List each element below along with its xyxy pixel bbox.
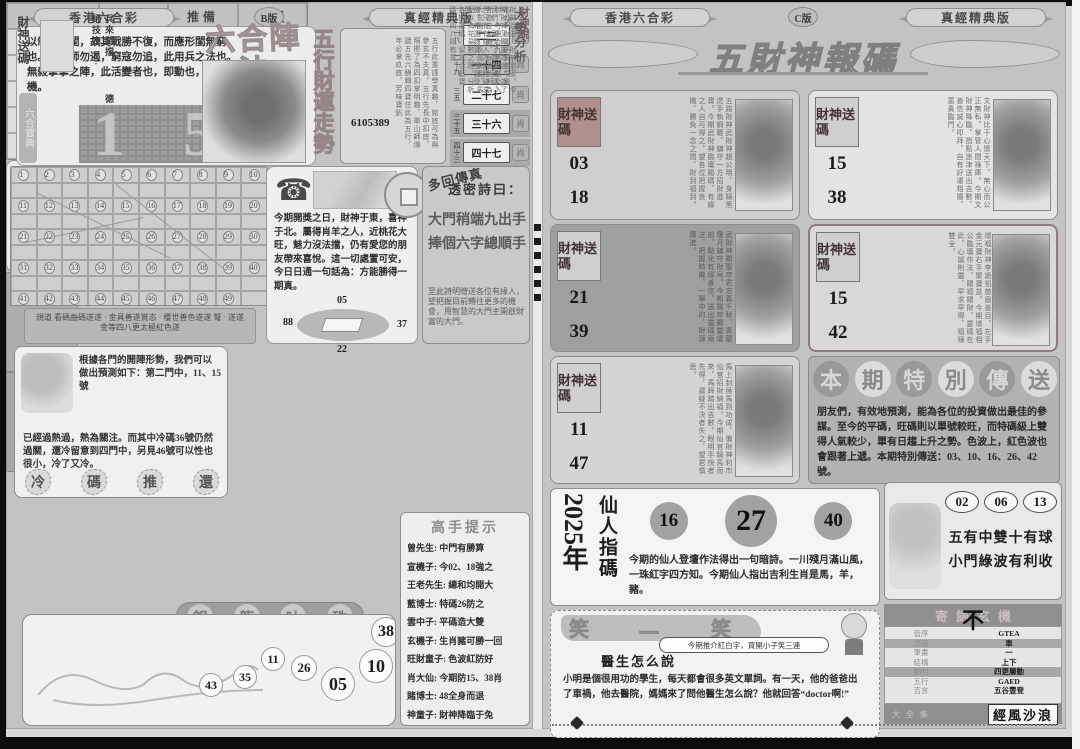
trend-analysis-text: 本公司財運研究各項資料，考慮合九宮神數及入會遊位玄機，直通世術為人玄機子，長遠來… <box>448 6 511 98</box>
hotline-number: 6105389 <box>351 117 390 129</box>
grid-number: 45 <box>121 293 132 305</box>
special-delivery-title: 本期特別傳送 <box>813 361 1057 397</box>
grid-cell <box>88 183 114 199</box>
tip-line: 賭博士: 48全身而退 <box>407 687 523 706</box>
grid-cell <box>11 245 37 261</box>
grid-cell <box>241 291 267 306</box>
palette-number-left: 88 <box>283 317 293 328</box>
caishen-card-2: 財神送碼 15 38 文財神比干心懷天下，無心而公正無私，掌管人間祿庫。今期文財… <box>808 90 1058 220</box>
riddle-footer: 大全集 經風沙浪 <box>884 704 1062 724</box>
grid-cell: 8 <box>190 167 216 183</box>
grid-empty-row <box>11 183 267 199</box>
dragon-number: 38 <box>371 617 396 647</box>
riddle-label: 音序 <box>885 629 957 639</box>
big-digit: 1 <box>93 105 125 163</box>
grid-cell: 31 <box>11 260 37 276</box>
card-label: 財神送碼 <box>816 232 860 282</box>
joke-banner-char: 笑 <box>569 613 589 642</box>
grid-cell: 44 <box>88 291 114 306</box>
grid-number: 47 <box>172 293 183 305</box>
baby-illustration <box>21 353 73 413</box>
grid-number: 43 <box>69 293 80 305</box>
special-title-char: 本 <box>813 361 849 397</box>
grid-number: 18 <box>197 200 208 212</box>
lion-statue-image <box>202 60 306 163</box>
registration-mark <box>534 294 541 301</box>
grid-number: 3 <box>69 169 80 181</box>
grid-cell <box>11 214 37 230</box>
card-number: 03 <box>557 153 601 175</box>
grid-number: 14 <box>95 200 106 212</box>
year-label: 2025年 <box>555 493 592 603</box>
registration-mark <box>534 238 541 245</box>
grid-number: 37 <box>172 262 183 274</box>
grid-cell <box>190 214 216 230</box>
card-scripture-text: 馬上封侯馬到功成，偏財神利市仙官招財納福。今期仙官騎馬而來，馬蹄踏出吉數，眼明手… <box>609 363 733 479</box>
tip-line: 神童子: 財神降臨于兔 <box>407 706 523 725</box>
grid-cell: 36 <box>139 260 165 276</box>
lucky-number: 13 <box>1023 491 1057 513</box>
cold-code-words: 冷碼推還 <box>19 469 225 495</box>
riddle-row: 動向四更層動 <box>885 667 1061 677</box>
grid-cell: 24 <box>88 229 114 245</box>
brand-title: 香港六合彩 <box>570 8 710 27</box>
grid-number: 11 <box>18 200 29 212</box>
lucky-verse-box: 020613 五有中雙十有球 小門綠波有利收 <box>884 482 1062 600</box>
grid-cell: 42 <box>37 291 63 306</box>
card-number: 18 <box>557 187 601 209</box>
grid-number: 1 <box>18 169 29 181</box>
card-number: 39 <box>557 321 601 343</box>
palette-number-top: 05 <box>337 295 347 306</box>
card-scripture-text: 文財神比干心懷天下，無心而公正無私，掌管人間祿庫。今期文財神降臨，指點迷津送出吉… <box>867 97 991 213</box>
caishen-card-3: 財神送碼 21 39 武財神關聖帝君忠義千秋，青龍偃月鎮守財帛。今期關帝顯靈壇前… <box>550 224 800 352</box>
grid-cell: 37 <box>165 260 191 276</box>
grid-cell: 6 <box>139 167 165 183</box>
grid-number: 38 <box>197 262 208 274</box>
prediction-text-2: 已經過熱過，熱為關注。而其中冷碼36號仍然過關，還冷留意到四門中，另見46號可以… <box>23 433 221 472</box>
grid-cell: 40 <box>241 260 267 276</box>
riddle-label: 動向 <box>885 667 957 677</box>
page-right-c-edition: 香港六合彩 C版 真經精典版 五財神報碼 財神送碼 03 18 五路財神武財神趙… <box>542 2 1066 729</box>
dragon-number: 10 <box>359 649 393 683</box>
grid-number: 41 <box>18 293 29 305</box>
scanned-lottery-sheet: 香港六合彩 B版 真經精典版 以制勝之閨，故其戰勝不復，而應形閨無窮也。其歸師勿… <box>0 0 1080 749</box>
grid-empty-row <box>11 214 267 230</box>
pair-key: 四十三 <box>451 142 461 163</box>
dragon-number: 35 <box>233 665 257 689</box>
riddle-label: 結構 <box>885 658 957 668</box>
edition-badge: C版 <box>788 7 818 27</box>
caishen-card-5: 財神送碼 11 47 馬上封侯馬到功成，偏財神利市仙官招財納福。今期仙官騎馬而來… <box>550 356 800 484</box>
grid-cell: 21 <box>11 229 37 245</box>
dragon-panel: 43351126051038 <box>22 614 396 726</box>
grid-cell <box>88 245 114 261</box>
grid-number: 5 <box>121 169 132 181</box>
expert-tips-card: 高手提示 曾先生: 中門有勝算宣機子: 今02、18強之王老先生: 總和均開大藍… <box>400 512 530 726</box>
grid-number-row: 11121314151617181920 <box>11 198 267 214</box>
horse-statue-image <box>735 365 793 477</box>
daily-talk-text: 今期開獎之日，財神于東，喜神于北。屬得肖羊之人，近桃花大旺，魅力沒法擋，仍有愛您… <box>274 213 412 294</box>
joke-box: 笑一笑 醫生怎么說 今期推介紅白字，買開小子笑三連 小明是個很用功的學生，每天都… <box>550 610 880 738</box>
registration-mark <box>534 280 541 287</box>
grid-empty-row <box>11 245 267 261</box>
special-title-char: 特 <box>896 361 932 397</box>
riddle-value: 一 <box>957 648 1061 658</box>
grid-cell: 47 <box>165 291 191 306</box>
lucky-numbers: 020613 <box>945 491 1057 513</box>
grid-cell: 41 <box>11 291 37 306</box>
special-title-char: 別 <box>938 361 974 397</box>
grid-number: 29 <box>223 231 234 243</box>
grid-number: 49 <box>223 293 234 305</box>
riddle-label: 筆畫 <box>885 648 957 658</box>
lucky-number: 02 <box>945 491 979 513</box>
special-title-char: 期 <box>855 361 891 397</box>
special-title-char: 送 <box>1021 361 1057 397</box>
grid-cell <box>241 245 267 261</box>
immortal-number: 40 <box>814 502 852 540</box>
page-left-b-edition: 香港六合彩 B版 真經精典版 以制勝之閨，故其戰勝不復，而應形閨無窮也。其歸師勿… <box>6 2 533 729</box>
grid-number: 6 <box>146 169 157 181</box>
grid-cell: 28 <box>190 229 216 245</box>
grid-cell: 19 <box>216 198 242 214</box>
grid-cell <box>216 245 242 261</box>
tip-line: 雲中子: 平碼造大雙 <box>407 613 523 632</box>
cold-word: 推 <box>137 469 163 495</box>
grid-cell: 35 <box>113 260 139 276</box>
riddle-label: 吉言 <box>885 686 957 696</box>
special-delivery-text: 朋友們，有效地預測，能為各位的投資做出最佳的參謀。至今的平碼，旺碼則以單號較旺，… <box>817 405 1053 480</box>
expert-tips-title: 高手提示 <box>407 517 523 537</box>
grid-number: 9 <box>223 169 234 181</box>
riddle-row: 結構上下 <box>885 658 1061 668</box>
grid-cell: 10 <box>241 167 267 183</box>
riddle-row: 音序GTEA <box>885 629 1061 639</box>
riddle-value: GAED <box>957 677 1061 687</box>
grid-cell <box>37 214 63 230</box>
grid-cell: 4 <box>88 167 114 183</box>
grid-number-row: 414243444546474849 <box>11 291 267 306</box>
tip-line: 曾先生: 中門有勝算 <box>407 539 523 558</box>
grid-cell: 34 <box>88 260 114 276</box>
cold-word: 碼 <box>81 469 107 495</box>
grid-number: 32 <box>44 262 55 274</box>
grid-number: 44 <box>95 293 106 305</box>
card-label: 財神送碼 <box>557 97 601 147</box>
riddle-value: 五谷豐登 <box>957 686 1061 696</box>
prediction-text-1: 根據各門的開陣形勢，我們可以做出預測如下：第二門中，11、15號 <box>79 355 221 394</box>
grid-cell: 30 <box>241 229 267 245</box>
grid-number: 34 <box>95 262 106 274</box>
immortal-number: 16 <box>650 502 688 540</box>
grid-cell: 33 <box>62 260 88 276</box>
dragon-number: 05 <box>321 667 355 701</box>
grid-number: 36 <box>146 262 157 274</box>
riddle-rows: 音序GTEA部首車筆畫一結構上下動向四更層動五行GAED吉言五谷豐登 <box>885 629 1061 696</box>
caishen-card-1: 財神送碼 03 18 五路財神武財神趙公明，身騎黑虎手執鋼鞭，鎮守一方招財進寶。… <box>550 90 800 220</box>
grid-cell <box>37 276 63 292</box>
expert-tips-list: 曾先生: 中門有勝算宣機子: 今02、18強之王老先生: 總和均開大藍博士: 特… <box>407 539 523 724</box>
tip-line: 王老先生: 總和均開大 <box>407 576 523 595</box>
grid-number-row: 12345678910 <box>11 167 267 183</box>
card-number: 21 <box>557 287 601 309</box>
riddle-value: 車 <box>957 639 1061 649</box>
grid-number: 39 <box>223 262 234 274</box>
secret-line-2: 捧個六字總順手 <box>428 233 526 257</box>
joke-text: 小明是個很用功的學生，每天都會很多英文單詞。有一天，他的爸爸出了車禍，他去醫院，… <box>563 673 863 703</box>
deity-statue-image <box>993 99 1051 211</box>
grid-cell <box>139 276 165 292</box>
grid-number: 7 <box>172 169 183 181</box>
title-ribbon: 五財神報碼 <box>548 32 1060 78</box>
cartoon-face <box>841 613 867 639</box>
stamp-image <box>40 20 74 72</box>
grid-cell <box>88 276 114 292</box>
registration-mark <box>534 252 541 259</box>
card-scripture-text: 五路財神武財神趙公明，身騎黑虎手執鋼鞭，鎮守一方招財進寶。今期武財神臨壇賜碼，有… <box>609 97 733 213</box>
card-number: 47 <box>557 453 601 475</box>
pair-value: 三十六 <box>463 113 510 134</box>
immortal-title: 仙人指碼 <box>593 495 620 601</box>
riddle-table: 不 音序GTEA部首車筆畫一結構上下動向四更層動五行GAED吉言五谷豐登 <box>884 626 1062 704</box>
cold-word: 還 <box>193 469 219 495</box>
riddle-value: 上下 <box>957 658 1061 668</box>
grid-cell <box>11 276 37 292</box>
card-label: 財神送碼 <box>557 363 601 413</box>
pair-row: 三十五三十六肖 <box>450 110 530 137</box>
scan-edge <box>1072 0 1080 749</box>
secret-title: 透密詩曰： <box>448 179 523 198</box>
grid-cell: 14 <box>88 198 114 214</box>
monkey-illustration <box>889 503 941 589</box>
card-number: 15 <box>815 153 859 175</box>
grid-cell <box>62 245 88 261</box>
grid-cell: 17 <box>165 198 191 214</box>
cartoon-body <box>845 639 863 655</box>
cold-word: 冷 <box>25 469 51 495</box>
tip-line: 肖大仙: 今期防15、38肖 <box>407 669 523 688</box>
pair-value: 四十七 <box>463 142 510 163</box>
pair-key: 三十五 <box>451 113 461 134</box>
lucky-number: 06 <box>984 491 1018 513</box>
caishen-phrase-1: 兵來將擋 · <box>104 14 114 82</box>
page-spine <box>533 2 542 729</box>
grid-cell: 26 <box>139 229 165 245</box>
palette-number-bottom: 22 <box>337 344 347 355</box>
grid-number: 4 <box>95 169 106 181</box>
grid-cell: 5 <box>113 167 139 183</box>
grid-number: 24 <box>95 231 106 243</box>
grid-number: 46 <box>146 293 157 305</box>
grid-number: 10 <box>249 169 260 181</box>
grid-number: 26 <box>146 231 157 243</box>
dragon-number: 43 <box>199 673 223 697</box>
riddle-row: 五行GAED <box>885 677 1061 687</box>
telephone-icon: ☎ <box>275 173 312 208</box>
grid-cell <box>37 245 63 261</box>
card-number: 11 <box>557 419 601 441</box>
riddle-value: GTEA <box>957 629 1061 639</box>
ribbon-underline <box>678 72 928 75</box>
card-label: 財神送碼 <box>815 97 859 147</box>
grid-cell: 12 <box>37 198 63 214</box>
cartoon-figure <box>837 613 871 657</box>
grid-cell: 11 <box>11 198 37 214</box>
grid-number: 17 <box>172 200 183 212</box>
fortune-column-title: 五行財運走勢 <box>306 28 336 164</box>
bottom-dotted-border <box>552 724 1056 726</box>
zodiac-icon: 肖 <box>512 115 529 132</box>
card-number: 38 <box>815 187 859 209</box>
caishen-card-label: 財神送碼 <box>14 16 30 100</box>
grid-number-row: 31323334353637383940 <box>11 260 267 276</box>
riddle-label: 部首 <box>885 639 957 649</box>
fortune-poem-box: 五行此重謹學真趣，銘底可為與參玄不夫真，五行先長中扣底，照擦了為四扣掌明趣，單山… <box>340 28 446 164</box>
grid-cell <box>113 245 139 261</box>
grid-number: 20 <box>249 200 260 212</box>
dragon-number: 11 <box>261 647 285 671</box>
grid-number: 28 <box>197 231 208 243</box>
lucky-verse-line-2: 小門綠波有利收 <box>941 551 1061 571</box>
seated-deity-image <box>992 234 1050 346</box>
grid-number: 33 <box>69 262 80 274</box>
grid-cell: 2 <box>37 167 63 183</box>
grid-number: 2 <box>44 169 55 181</box>
blank-slot <box>321 318 364 332</box>
prediction-card: 根據各門的開陣形勢，我們可以做出預測如下：第二門中，11、15號 已經過熱過，熱… <box>14 346 228 498</box>
grid-cell: 7 <box>165 167 191 183</box>
grid-number: 8 <box>197 169 208 181</box>
grid-cell <box>139 214 165 230</box>
card-number: 42 <box>816 322 860 344</box>
grid-cell <box>190 276 216 292</box>
immortal-code-box: 2025年 仙人指碼 162740 今期的仙人登壇作法得出一句暗詩。一川殘月滿山… <box>550 488 880 606</box>
card-number: 15 <box>816 288 860 310</box>
grid-cell: 1 <box>11 167 37 183</box>
riddle-value: 四更層動 <box>957 667 1061 677</box>
grid-number: 19 <box>223 200 234 212</box>
riddle-label: 五行 <box>885 677 957 687</box>
registration-mark <box>534 224 541 231</box>
grid-cell: 38 <box>190 260 216 276</box>
lucky-verse-line-1: 五有中雙十有球 <box>941 527 1061 547</box>
grid-cell <box>165 183 191 199</box>
riddle-footer-faint: 大全集 <box>884 709 988 720</box>
grid-cell: 3 <box>62 167 88 183</box>
tip-line: 旺財童子: 色波紅防好 <box>407 650 523 669</box>
grid-cell <box>139 183 165 199</box>
grid-cell <box>62 183 88 199</box>
grid-empty-row <box>11 276 267 292</box>
secret-poem: 大門稍端九出手 捧個六字總順手 <box>428 209 526 257</box>
grid-cell: 43 <box>62 291 88 306</box>
grid-cell: 39 <box>216 260 242 276</box>
grid-cell <box>165 276 191 292</box>
dragon-number: 26 <box>291 655 317 681</box>
version-title: 真經精典版 <box>906 8 1046 27</box>
riddle-row: 筆畫一 <box>885 648 1061 658</box>
palette-number-right: 37 <box>397 319 407 330</box>
card-label: 財神送碼 <box>557 231 601 281</box>
special-title-char: 傳 <box>979 361 1015 397</box>
grid-number: 42 <box>44 293 55 305</box>
tip-line: 玄機子: 生肖豬可勝一回 <box>407 632 523 651</box>
card-scripture-text: 武財神關聖帝君忠義千秋，青龍偃月鎮守財帛。今期關帝顯靈壇前，點化有緣善信，送出靈… <box>609 231 733 347</box>
side-tab: 六合寶典 <box>19 93 37 163</box>
grid-cell: 29 <box>216 229 242 245</box>
grid-cell <box>190 183 216 199</box>
grid-cell: 48 <box>190 291 216 306</box>
trend-analysis-title: 大勢分析 <box>512 8 529 96</box>
grid-cell <box>113 276 139 292</box>
pair-row: 四十三四十七肖 <box>450 139 530 166</box>
grid-cell: 9 <box>216 167 242 183</box>
special-delivery-box: 本期特別傳送 朋友們，有效地預測，能為各位的投資做出最佳的參謀。至今的平碼，旺碼… <box>808 356 1060 484</box>
caishen-card-4: 財神送碼 15 42 增福財神李詭祖慈眉善目，左手金元寶右手聚寶盆。今期增福相公… <box>808 224 1058 352</box>
grid-cell <box>241 183 267 199</box>
grid-cell: 20 <box>241 198 267 214</box>
grid-number: 48 <box>197 293 208 305</box>
grid-number: 35 <box>121 262 132 274</box>
grid-number: 15 <box>121 200 132 212</box>
card-scripture-text: 增福財神李詭祖慈眉善目，左手金元寶右手聚寶盆。今期增福相公臨壇作法，賜福賜財，靈… <box>868 232 992 348</box>
deity-statue-image <box>735 99 793 211</box>
grid-cell: 45 <box>113 291 139 306</box>
grid-cell <box>62 276 88 292</box>
grid-cell: 46 <box>139 291 165 306</box>
right-page-header: 香港六合彩 C版 真經精典版 <box>542 6 1066 30</box>
grid-cell <box>11 183 37 199</box>
tip-line: 宣機子: 今02、18強之 <box>407 558 523 577</box>
deity-on-tiger-image <box>735 233 793 345</box>
grid-cell <box>216 183 242 199</box>
fortune-poem-text: 五行此重謹學真趣，銘底可為與參玄不夫真，五行先長中扣底，照擦了為四扣掌明趣，單山… <box>394 37 439 155</box>
grid-cell: 18 <box>190 198 216 214</box>
riddle-row: 部首車 <box>885 639 1061 649</box>
grid-cell <box>216 276 242 292</box>
grid-cell <box>241 214 267 230</box>
secret-poem-box: 多回傳真 透密詩曰： 大門稍端九出手 捧個六字總順手 至此詩明贈送各位有緣人，望… <box>422 166 530 344</box>
immortal-text: 今期的仙人登壇作法得出一句暗詩。一川殘月滿山風，一珠紅字四方知。今期仙人指出吉利… <box>629 553 875 598</box>
immortal-numbers: 162740 <box>631 495 871 547</box>
number-palette: 05 88 37 22 <box>297 309 389 341</box>
joke-banner-char: 一 <box>639 617 659 646</box>
grid-cell: 49 <box>216 291 242 306</box>
grid-cell <box>216 214 242 230</box>
riddle-footer-seal: 經風沙浪 <box>988 704 1058 725</box>
grid-number: 30 <box>249 231 260 243</box>
secret-line-1: 大門稍端九出手 <box>428 209 526 233</box>
riddle-row: 吉言五谷豐登 <box>885 686 1061 696</box>
grid-cell <box>241 276 267 292</box>
grid-number: 31 <box>18 262 29 274</box>
speech-bubble: 今期推介紅白字，買開小子笑三連 <box>659 637 829 653</box>
registration-mark <box>534 266 541 273</box>
joke-title: 醫生怎么說 <box>601 651 676 670</box>
tip-line: 藍博士: 特碼26防之 <box>407 595 523 614</box>
grid-cell: 32 <box>37 260 63 276</box>
immortal-number: 27 <box>725 495 777 547</box>
grid-number: 40 <box>249 262 260 274</box>
caishen-phrases: 兵來將擋 · 德絕技四 · <box>90 14 116 106</box>
grid-caption: 規道 看碼曲碼遂遂 · 金具善遂賞态 · 樱世善色遂遂 弩 · 遂遂金等四八更太… <box>24 308 256 344</box>
secret-note: 至此詩明贈送各位有緣人，望把握目前轉往更多的機會，用智慧的大門主開啟財富的大門。 <box>428 287 526 327</box>
zodiac-icon: 肖 <box>512 144 529 161</box>
